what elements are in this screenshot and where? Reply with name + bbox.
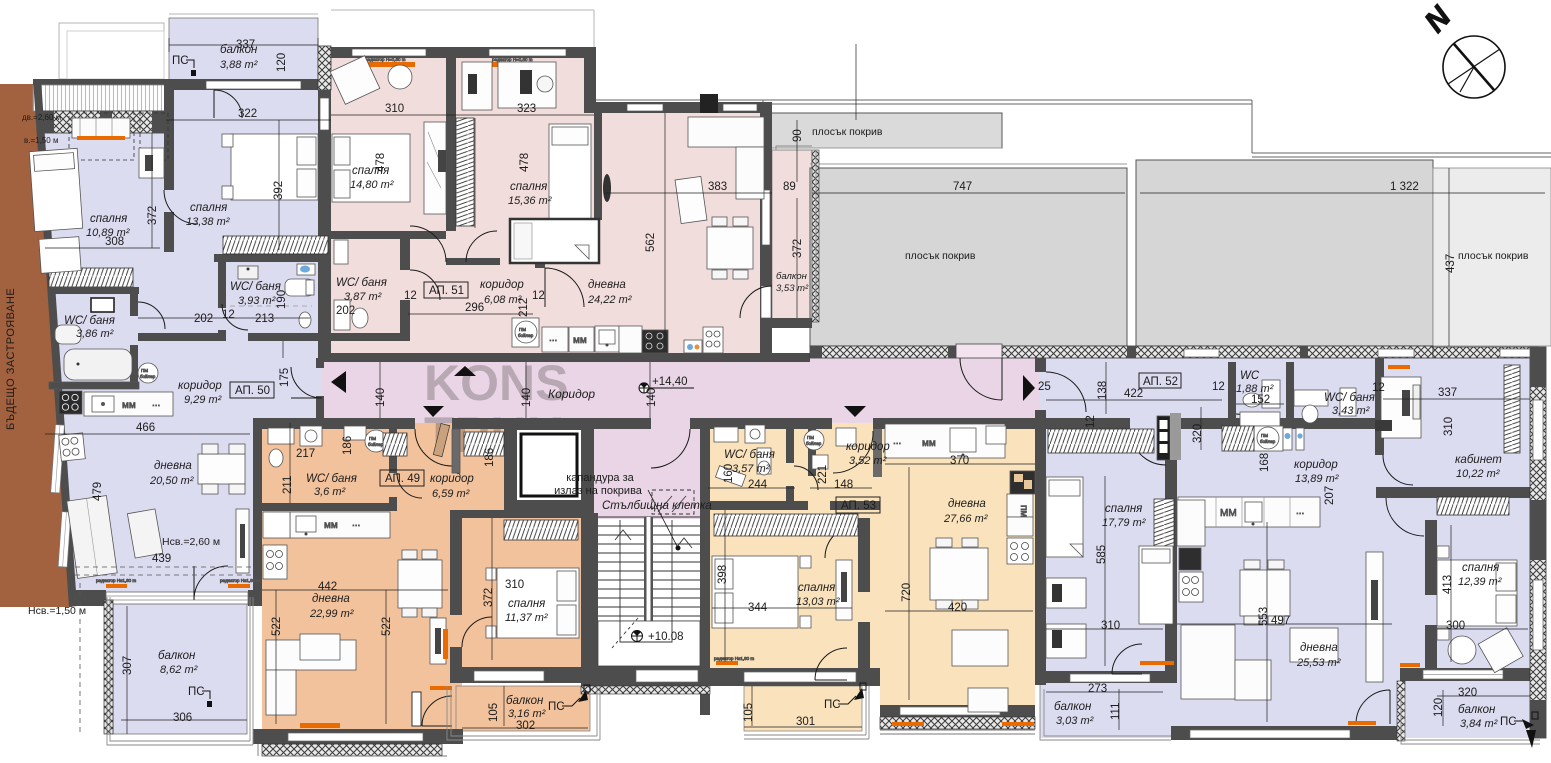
svg-text:...: ... xyxy=(152,398,160,409)
svg-text:спалня: спалня xyxy=(798,582,835,594)
svg-text:ПС: ПС xyxy=(548,701,565,713)
svg-text:мм: мм xyxy=(922,438,936,449)
svg-text:АП. 53: АП. 53 xyxy=(841,500,876,512)
svg-text:АП. 51: АП. 51 xyxy=(429,285,464,297)
svg-text:372: 372 xyxy=(147,206,159,225)
svg-text:в.=1,50 м: в.=1,50 м xyxy=(24,136,58,145)
svg-text:3,03 m²: 3,03 m² xyxy=(1056,715,1094,727)
svg-text:105: 105 xyxy=(743,703,755,722)
svg-text:190: 190 xyxy=(276,290,288,309)
svg-text:111: 111 xyxy=(1110,703,1122,720)
svg-text:217: 217 xyxy=(296,448,315,460)
svg-text:дневна: дневна xyxy=(312,593,350,605)
svg-text:747: 747 xyxy=(953,181,972,193)
svg-text:дневна: дневна xyxy=(154,460,192,472)
svg-text:коридор: коридор xyxy=(430,473,474,485)
svg-text:306: 306 xyxy=(173,712,192,724)
svg-text:3,86 m²: 3,86 m² xyxy=(76,328,114,340)
svg-text:12: 12 xyxy=(1085,415,1097,428)
svg-text:160: 160 xyxy=(723,464,735,483)
svg-text:398: 398 xyxy=(717,565,729,584)
svg-text:307: 307 xyxy=(122,656,134,675)
svg-text:ПМ: ПМ xyxy=(369,436,376,441)
svg-text:ПМ: ПМ xyxy=(807,435,814,440)
svg-text:балкон: балкон xyxy=(158,650,196,662)
svg-text:ММ: ММ xyxy=(1220,508,1237,519)
svg-text:310: 310 xyxy=(385,103,404,115)
svg-text:3,87 m²: 3,87 m² xyxy=(344,291,382,303)
svg-text:479: 479 xyxy=(92,482,104,501)
svg-text:3,16 m²: 3,16 m² xyxy=(508,708,546,720)
svg-text:372: 372 xyxy=(483,588,495,607)
svg-text:585: 585 xyxy=(1096,545,1108,564)
svg-text:мм: мм xyxy=(324,520,338,531)
svg-text:140: 140 xyxy=(521,388,533,407)
svg-text:ПМ: ПМ xyxy=(141,368,148,373)
svg-text:излаз на покрива: излаз на покрива xyxy=(554,485,643,497)
svg-text:337: 337 xyxy=(1438,387,1457,399)
svg-text:плосък покрив: плосък покрив xyxy=(812,126,883,138)
svg-text:13,89 m²: 13,89 m² xyxy=(1295,473,1339,485)
svg-text:372: 372 xyxy=(792,239,804,258)
svg-text:мм: мм xyxy=(122,400,136,411)
svg-text:кабинет: кабинет xyxy=(1455,454,1502,466)
svg-text:168: 168 xyxy=(1259,453,1271,472)
svg-text:спалня: спалня xyxy=(1105,503,1142,515)
svg-text:WC/ баня: WC/ баня xyxy=(230,281,281,293)
svg-text:WC/ баня: WC/ баня xyxy=(724,449,775,461)
svg-text:3,88 m²: 3,88 m² xyxy=(220,59,258,71)
svg-text:ПС: ПС xyxy=(188,686,205,698)
svg-text:392: 392 xyxy=(273,181,285,200)
svg-text:553: 553 xyxy=(1258,607,1270,626)
svg-text:11,37 m²: 11,37 m² xyxy=(505,612,548,624)
svg-text:186: 186 xyxy=(342,436,354,455)
svg-text:383: 383 xyxy=(708,181,727,193)
svg-text:17,79 m²: 17,79 m² xyxy=(1102,517,1146,529)
svg-text:422: 422 xyxy=(1124,388,1143,400)
svg-text:140: 140 xyxy=(375,388,387,407)
svg-text:бойлер: бойлер xyxy=(1260,438,1276,444)
svg-text:12: 12 xyxy=(222,309,235,321)
svg-text:25: 25 xyxy=(1038,381,1051,393)
svg-text:ПМ: ПМ xyxy=(519,327,526,332)
svg-text:27,66 m²: 27,66 m² xyxy=(943,513,988,525)
svg-text:спалня: спалня xyxy=(508,598,545,610)
svg-text:522: 522 xyxy=(271,617,283,636)
svg-text:Нсв.=2,60 м: Нсв.=2,60 м xyxy=(162,536,220,548)
svg-text:301: 301 xyxy=(796,716,815,728)
svg-text:АП. 52: АП. 52 xyxy=(1143,376,1178,388)
svg-text:3,6 m²: 3,6 m² xyxy=(314,486,346,498)
svg-text:12: 12 xyxy=(404,290,417,302)
svg-text:211: 211 xyxy=(282,476,294,494)
svg-text:186: 186 xyxy=(484,448,496,467)
svg-text:9,29 m²: 9,29 m² xyxy=(184,394,222,406)
svg-text:323: 323 xyxy=(517,103,536,115)
svg-text:...: ... xyxy=(549,333,557,344)
svg-text:3,43 m²: 3,43 m² xyxy=(1332,405,1370,417)
svg-text:15,36 m²: 15,36 m² xyxy=(508,195,552,207)
svg-text:300: 300 xyxy=(1446,620,1465,632)
svg-text:балкон: балкон xyxy=(1458,704,1496,716)
svg-text:радиатор H=0,60 m: радиатор H=0,60 m xyxy=(492,57,533,62)
svg-text:13,03 m²: 13,03 m² xyxy=(796,596,840,608)
svg-text:89: 89 xyxy=(783,181,796,193)
svg-text:3,93 m²: 3,93 m² xyxy=(238,295,276,307)
svg-text:плосък покрив: плосък покрив xyxy=(905,250,976,262)
svg-text:...: ... xyxy=(893,436,901,447)
svg-text:WC: WC xyxy=(1240,370,1260,382)
svg-text:3,52 m²: 3,52 m² xyxy=(849,455,887,467)
svg-text:439: 439 xyxy=(152,553,171,565)
svg-text:коридор: коридор xyxy=(846,441,890,453)
svg-text:...: ... xyxy=(352,518,360,529)
svg-text:244: 244 xyxy=(748,479,768,491)
svg-text:бойлер: бойлер xyxy=(806,440,822,446)
svg-text:6,59 m²: 6,59 m² xyxy=(432,488,470,500)
svg-text:310: 310 xyxy=(505,579,524,591)
svg-text:12: 12 xyxy=(1372,382,1385,394)
svg-text:148: 148 xyxy=(834,479,853,491)
svg-text:497: 497 xyxy=(1271,615,1290,627)
svg-text:радиатор Hs1,80 m: радиатор Hs1,80 m xyxy=(714,656,754,661)
svg-text:22,99 m²: 22,99 m² xyxy=(309,608,354,620)
svg-text:спалня: спалня xyxy=(510,181,547,193)
svg-text:720: 720 xyxy=(901,583,913,602)
svg-text:12: 12 xyxy=(532,290,545,302)
svg-text:...: ... xyxy=(1296,506,1304,517)
svg-text:бойлер: бойлер xyxy=(368,441,384,447)
svg-text:3,84 m²: 3,84 m² xyxy=(1460,718,1498,730)
svg-text:337: 337 xyxy=(236,39,255,51)
svg-text:ПМ: ПМ xyxy=(1261,433,1268,438)
svg-text:дневна: дневна xyxy=(1300,642,1338,654)
svg-text:478: 478 xyxy=(375,153,387,172)
svg-text:478: 478 xyxy=(519,153,531,172)
svg-text:105: 105 xyxy=(488,703,500,722)
svg-text:120: 120 xyxy=(1433,698,1445,717)
svg-text:320: 320 xyxy=(1458,687,1477,699)
svg-text:370: 370 xyxy=(950,455,969,467)
svg-text:плосък покрив: плосък покрив xyxy=(1458,250,1529,262)
svg-text:344: 344 xyxy=(748,602,768,614)
svg-text:6,08 m²: 6,08 m² xyxy=(484,294,522,306)
svg-text:310: 310 xyxy=(1443,417,1455,436)
svg-text:АП. 50: АП. 50 xyxy=(235,385,270,397)
svg-text:562: 562 xyxy=(645,233,657,252)
svg-text:310: 310 xyxy=(1101,620,1120,632)
svg-text:413: 413 xyxy=(1442,575,1454,594)
svg-text:20,50 m²: 20,50 m² xyxy=(149,475,194,487)
svg-text:320: 320 xyxy=(1192,424,1204,443)
svg-text:296: 296 xyxy=(465,302,484,314)
svg-text:120: 120 xyxy=(276,53,288,72)
svg-text:Нсв.=1,50 м: Нсв.=1,50 м xyxy=(28,605,86,617)
svg-text:138: 138 xyxy=(1097,381,1109,400)
svg-text:WC/ баня: WC/ баня xyxy=(306,473,357,485)
svg-text:балкон: балкон xyxy=(1054,701,1092,713)
svg-text:24,22 m²: 24,22 m² xyxy=(587,294,632,306)
svg-text:12: 12 xyxy=(1212,381,1225,393)
svg-text:522: 522 xyxy=(381,617,393,636)
svg-text:221: 221 xyxy=(817,465,829,484)
svg-text:+10.08: +10.08 xyxy=(648,631,684,643)
svg-text:пм: пм xyxy=(1018,505,1029,517)
svg-text:радиатор Hs1,80 m: радиатор Hs1,80 m xyxy=(220,578,260,583)
svg-text:Коридор: Коридор xyxy=(548,387,595,401)
svg-text:балкон: балкон xyxy=(776,271,808,282)
svg-text:спалня: спалня xyxy=(1462,562,1499,574)
svg-text:3,53 m²: 3,53 m² xyxy=(776,283,809,294)
svg-text:322: 322 xyxy=(238,108,257,120)
svg-text:140: 140 xyxy=(646,388,658,407)
svg-text:273: 273 xyxy=(1088,683,1107,695)
svg-text:бойлер: бойлер xyxy=(518,332,534,338)
svg-text:213: 213 xyxy=(255,313,274,325)
svg-text:ПС: ПС xyxy=(824,699,841,711)
svg-text:420: 420 xyxy=(948,602,967,614)
svg-text:балкон: балкон xyxy=(506,695,544,707)
svg-text:спалня: спалня xyxy=(90,213,127,225)
svg-text:442: 442 xyxy=(318,581,337,593)
svg-text:202: 202 xyxy=(336,305,355,317)
svg-text:радиатор H=0,60 m: радиатор H=0,60 m xyxy=(365,57,406,62)
svg-text:175: 175 xyxy=(279,368,291,387)
svg-text:KONS: KONS xyxy=(424,355,568,411)
svg-text:WC/ баня: WC/ баня xyxy=(64,315,115,327)
svg-text:207: 207 xyxy=(1324,486,1336,505)
svg-text:212: 212 xyxy=(518,298,530,317)
svg-text:бойлер: бойлер xyxy=(140,373,156,379)
svg-text:466: 466 xyxy=(136,422,155,434)
svg-text:152: 152 xyxy=(1251,394,1270,406)
svg-text:1 322: 1 322 xyxy=(1390,181,1419,193)
svg-text:коридор: коридор xyxy=(1294,459,1338,471)
svg-text:мм: мм xyxy=(573,335,587,346)
svg-text:3,57 m²: 3,57 m² xyxy=(732,463,770,475)
svg-text:25,53 m²: 25,53 m² xyxy=(1296,657,1341,669)
svg-text:8,62 m²: 8,62 m² xyxy=(160,664,198,676)
svg-text:WC/ баня: WC/ баня xyxy=(1324,392,1375,404)
svg-text:дневна: дневна xyxy=(588,279,626,291)
svg-text:капандура за: капандура за xyxy=(566,472,634,484)
svg-text:308: 308 xyxy=(105,236,124,248)
svg-text:дневна: дневна xyxy=(948,498,986,510)
svg-text:дв.=2,60 м: дв.=2,60 м xyxy=(22,113,61,122)
svg-text:коридор: коридор xyxy=(178,380,222,392)
svg-text:202: 202 xyxy=(194,313,213,325)
svg-text:13,38 m²: 13,38 m² xyxy=(186,216,230,228)
svg-text:БЪДЕЩО ЗАСТРОЯВАНЕ: БЪДЕЩО ЗАСТРОЯВАНЕ xyxy=(5,288,17,430)
svg-text:+14,40: +14,40 xyxy=(652,376,688,388)
svg-text:радиатор Hs1,80 m: радиатор Hs1,80 m xyxy=(96,578,136,583)
svg-text:10,22 m²: 10,22 m² xyxy=(1456,468,1500,480)
svg-text:Стълбищна клетка: Стълбищна клетка xyxy=(602,500,712,512)
svg-text:437: 437 xyxy=(1445,254,1457,273)
svg-text:90: 90 xyxy=(792,129,804,142)
svg-text:ПС: ПС xyxy=(1500,716,1517,728)
svg-text:12,39 m²: 12,39 m² xyxy=(1458,576,1502,588)
svg-text:АП. 49: АП. 49 xyxy=(385,473,420,485)
svg-text:302: 302 xyxy=(516,720,535,732)
svg-text:коридор: коридор xyxy=(480,279,524,291)
svg-text:ПС: ПС xyxy=(172,55,189,67)
svg-text:14,80 m²: 14,80 m² xyxy=(350,179,394,191)
svg-text:спалня: спалня xyxy=(190,202,227,214)
svg-text:WC/ баня: WC/ баня xyxy=(336,277,387,289)
